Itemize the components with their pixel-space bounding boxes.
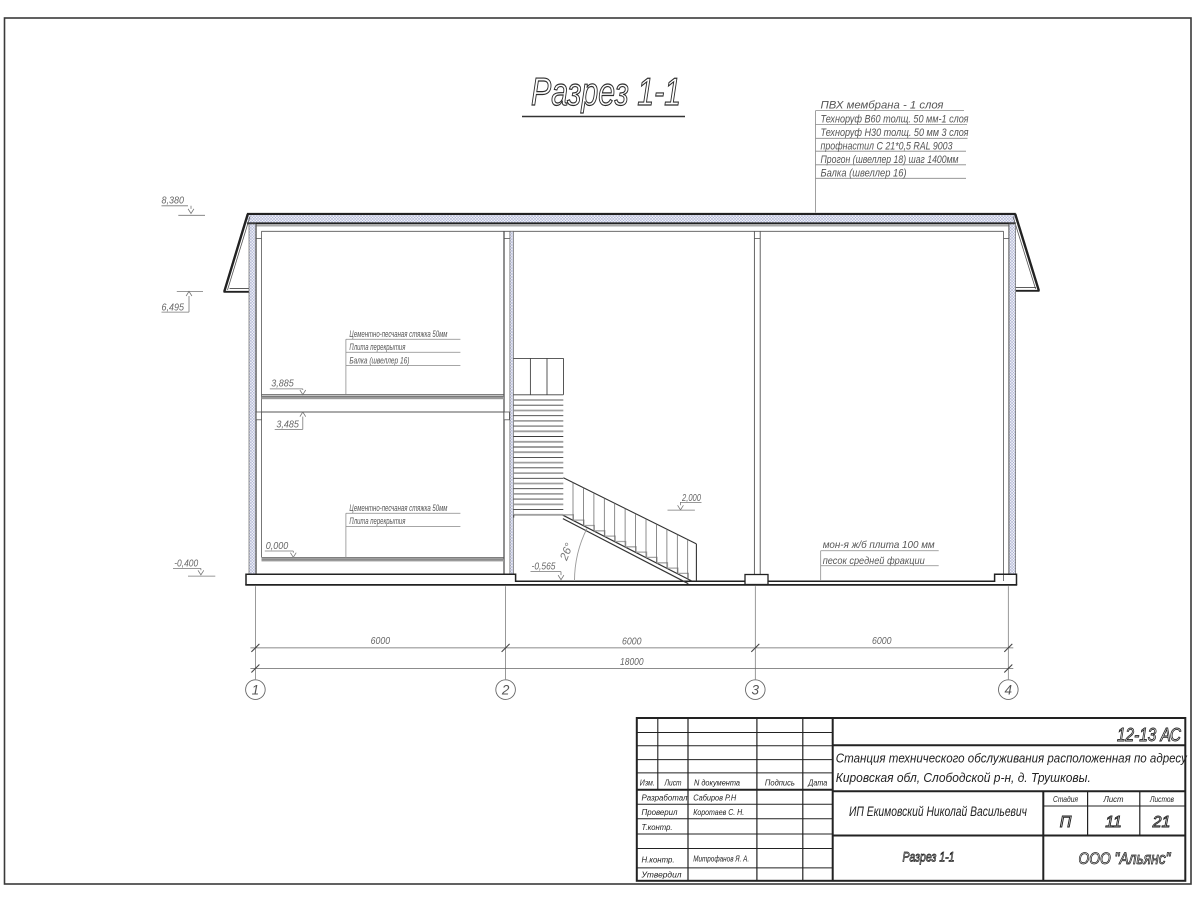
svg-text:6000: 6000 — [622, 636, 642, 648]
svg-text:3: 3 — [752, 682, 760, 697]
svg-text:Н.контр.: Н.контр. — [642, 856, 675, 865]
svg-text:21: 21 — [1152, 814, 1171, 831]
svg-text:Прогон (швеллер 18) шаг 1400мм: Прогон (швеллер 18) шаг 1400мм — [821, 154, 959, 166]
svg-text:3,885: 3,885 — [271, 378, 294, 390]
svg-text:2: 2 — [501, 682, 510, 697]
svg-text:3,485: 3,485 — [276, 419, 299, 431]
svg-text:Техноруф В60 толщ. 50 мм-1 сло: Техноруф В60 толщ. 50 мм-1 слоя — [821, 113, 969, 125]
svg-text:1: 1 — [252, 682, 260, 697]
svg-text:Проверил: Проверил — [642, 808, 678, 817]
svg-text:Балка (швеллер 16): Балка (швеллер 16) — [349, 355, 409, 366]
svg-text:Лист: Лист — [664, 779, 682, 788]
svg-text:-0,565: -0,565 — [532, 560, 556, 572]
svg-text:ООО "Альянс": ООО "Альянс" — [1079, 849, 1172, 868]
svg-text:11: 11 — [1105, 814, 1122, 831]
svg-text:Утвердил: Утвердил — [640, 870, 681, 879]
svg-text:Листов: Листов — [1149, 795, 1174, 804]
svg-text:4: 4 — [1005, 682, 1013, 697]
svg-text:Разработал: Разработал — [642, 794, 688, 803]
svg-text:Дата: Дата — [807, 779, 827, 788]
svg-text:Плита перекрытия: Плита перекрытия — [349, 342, 405, 353]
svg-text:Разрез 1-1: Разрез 1-1 — [903, 849, 955, 865]
svg-text:N документа: N документа — [694, 779, 740, 788]
svg-text:Плита перекрытия: Плита перекрытия — [349, 516, 405, 527]
svg-text:Цементно-песчаная стяжка 50мм: Цементно-песчаная стяжка 50мм — [349, 329, 447, 340]
svg-text:Станция технического обслужива: Станция технического обслуживания распол… — [836, 751, 1188, 766]
svg-text:6000: 6000 — [872, 635, 892, 647]
svg-text:ИП Екимовский Николай Васильев: ИП Екимовский Николай Васильевич — [849, 804, 1027, 819]
svg-text:Изм.: Изм. — [640, 779, 655, 788]
svg-text:6000: 6000 — [371, 635, 391, 647]
svg-text:песок средней фракции: песок средней фракции — [823, 555, 925, 567]
svg-text:Сабиров Р.Н: Сабиров Р.Н — [693, 794, 736, 803]
svg-text:0,000: 0,000 — [266, 540, 289, 552]
svg-text:Техноруф Н30 толщ. 50 мм 3 сло: Техноруф Н30 толщ. 50 мм 3 слоя — [821, 127, 969, 139]
svg-text:профнастил С 21*0,5 RAL 9003: профнастил С 21*0,5 RAL 9003 — [821, 140, 954, 152]
svg-text:6,495: 6,495 — [162, 301, 185, 313]
svg-text:Коротаев С. Н.: Коротаев С. Н. — [693, 808, 744, 817]
svg-text:Т.контр.: Т.контр. — [642, 823, 673, 832]
svg-text:Лист: Лист — [1103, 795, 1124, 804]
svg-text:Кировская обл, Слободской р-н,: Кировская обл, Слободской р-н, д. Трушко… — [836, 770, 1091, 785]
svg-text:Подпись: Подпись — [765, 779, 795, 788]
svg-text:ПВХ мембрана - 1 слоя: ПВХ мембрана - 1 слоя — [821, 100, 944, 112]
svg-text:мон-я ж/б плита 100 мм: мон-я ж/б плита 100 мм — [823, 539, 935, 551]
svg-text:Балка (швеллер 16): Балка (швеллер 16) — [821, 167, 907, 179]
svg-text:Митрофанов Я. А.: Митрофанов Я. А. — [693, 855, 749, 864]
svg-text:8,380: 8,380 — [162, 195, 185, 207]
svg-text:Цементно-песчаная стяжка 50мм: Цементно-песчаная стяжка 50мм — [349, 503, 447, 514]
svg-text:Стадия: Стадия — [1053, 795, 1079, 804]
svg-text:12-13 АС: 12-13 АС — [1117, 724, 1182, 745]
svg-text:Разрез 1-1: Разрез 1-1 — [531, 71, 681, 114]
svg-text:-0,400: -0,400 — [174, 557, 198, 569]
svg-text:П: П — [1060, 814, 1072, 831]
svg-text:18000: 18000 — [620, 656, 644, 668]
